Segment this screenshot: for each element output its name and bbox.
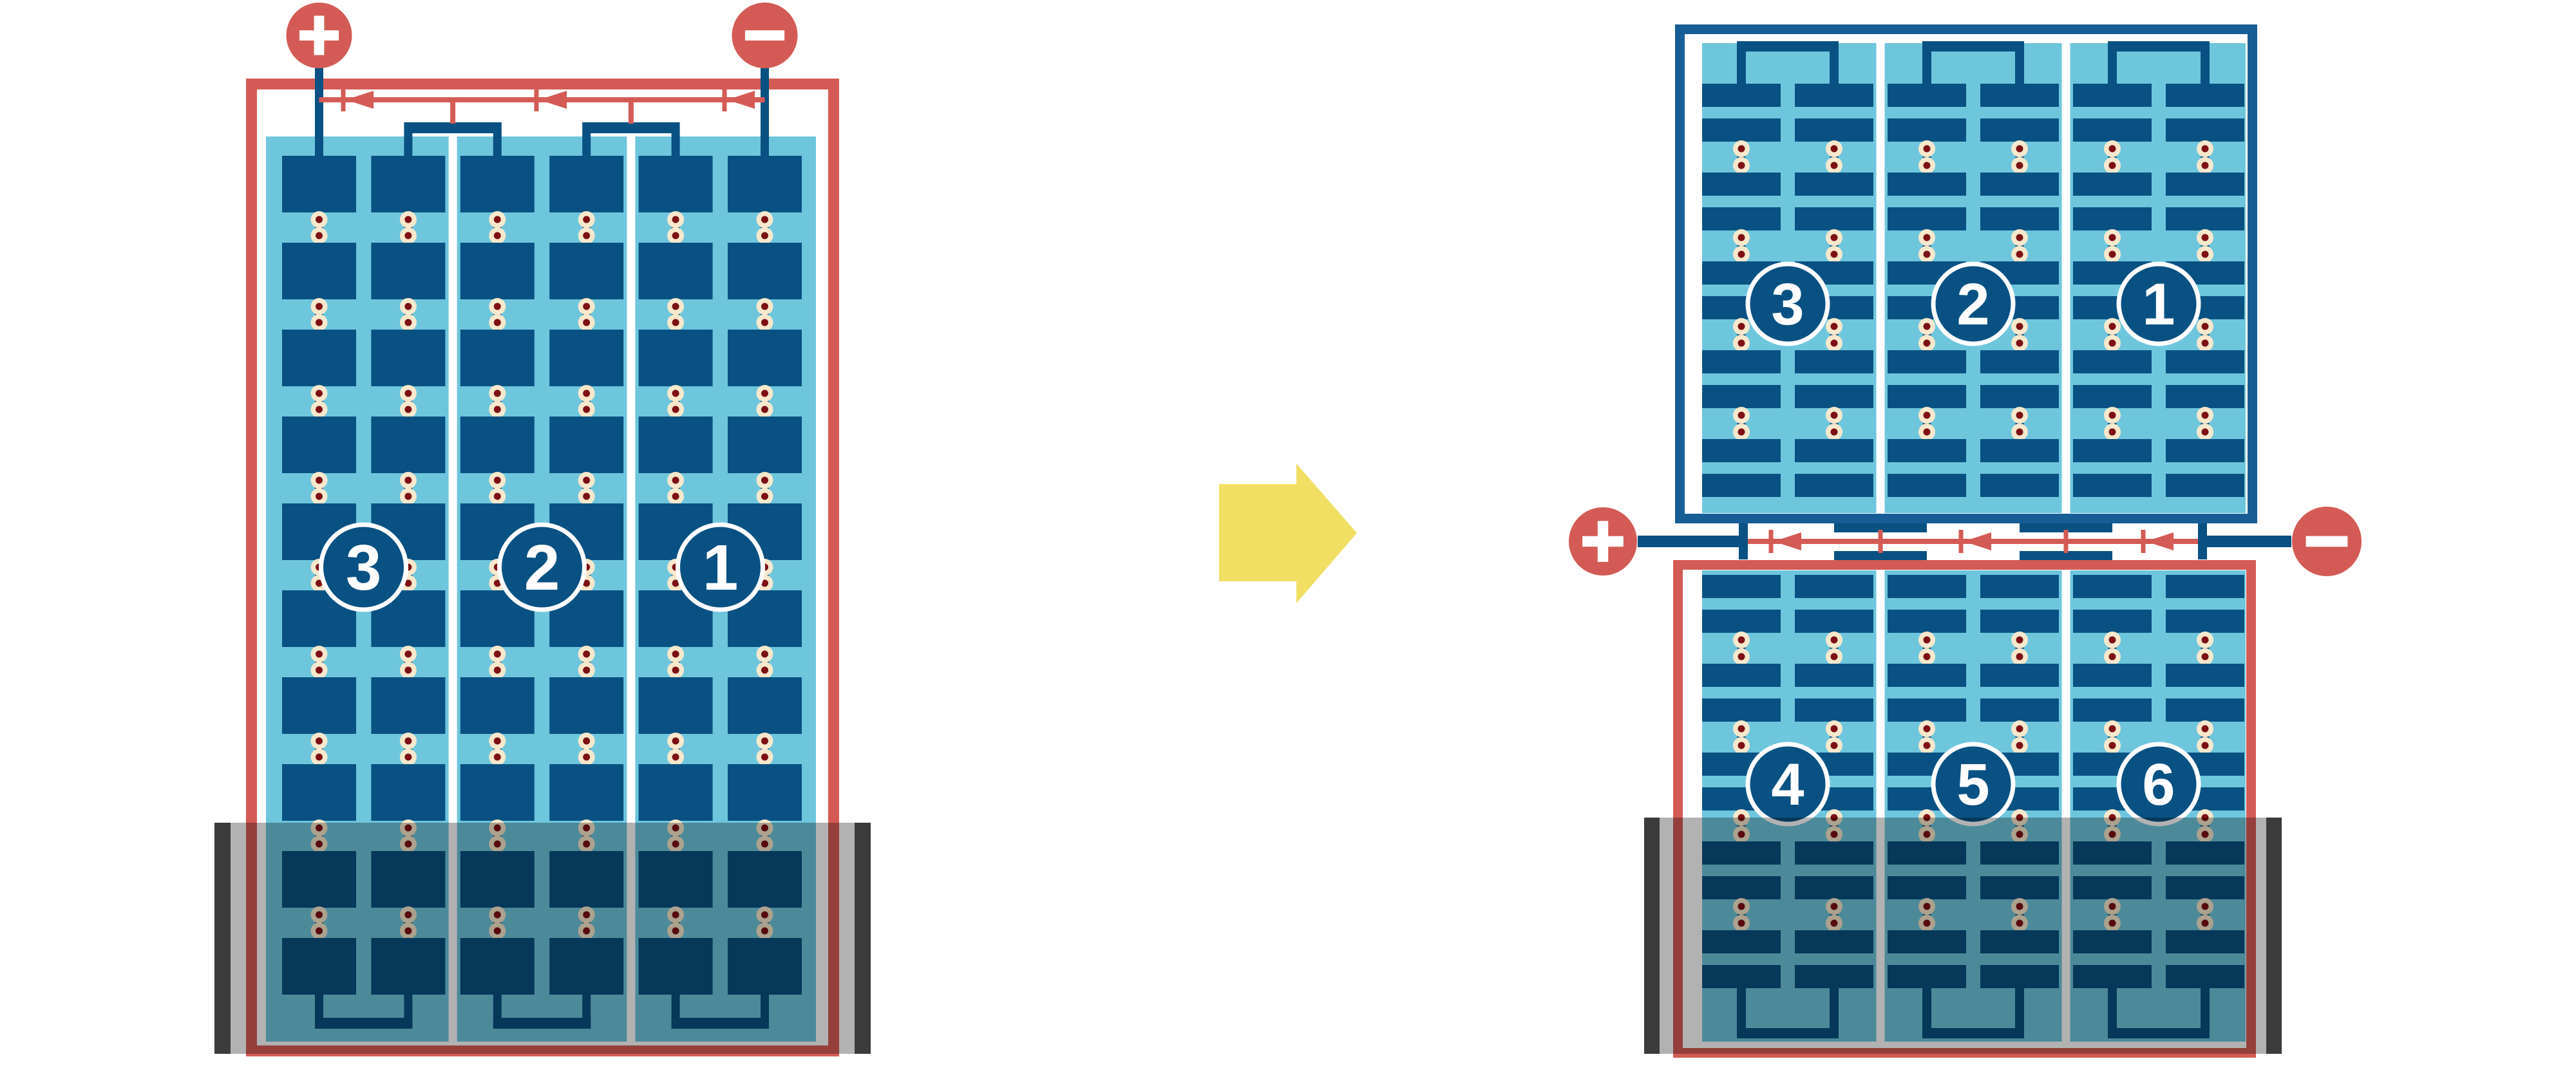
solder-dot-core — [1831, 234, 1838, 241]
solder-dot-core — [583, 738, 590, 745]
solar-cell — [282, 417, 356, 473]
solar-cell — [1795, 610, 1873, 633]
solder-dot-core — [2202, 429, 2209, 436]
solder-dot-core — [2109, 162, 2116, 169]
solar-cell — [2166, 575, 2244, 598]
solar-cell — [1702, 385, 1781, 408]
solder-dot-core — [2202, 251, 2209, 258]
string-label-circle: 4 — [1748, 744, 1828, 824]
solder-dot-core — [1738, 653, 1745, 660]
solder-dot-core — [1924, 429, 1931, 436]
solder-dot-core — [2202, 653, 2209, 660]
terminal-stem — [2207, 536, 2291, 547]
right-module-top-half: 321 — [1680, 30, 2253, 519]
jumper-stem — [672, 133, 680, 156]
solder-dot-core — [494, 754, 501, 761]
plus-terminal-icon — [287, 3, 352, 68]
solder-dot-core — [583, 651, 590, 658]
solder-dot-core — [1924, 145, 1931, 153]
solder-dot-core — [316, 319, 323, 326]
solder-dot-core — [761, 216, 768, 223]
shade-edge-bar — [214, 823, 231, 1054]
solar-cell — [2166, 698, 2244, 722]
solder-dot-core — [1831, 653, 1838, 660]
solder-dot-core — [2202, 742, 2209, 749]
solder-dot-core — [761, 754, 768, 761]
solder-dot-core — [672, 738, 679, 745]
solder-dot-core — [1924, 323, 1931, 330]
solder-dot-core — [583, 754, 590, 761]
solar-cell — [1980, 173, 2059, 196]
solder-dot-core — [1924, 251, 1931, 258]
shade-edge-bar — [2266, 818, 2282, 1054]
solar-cell — [460, 243, 535, 299]
u-connector-stem — [2108, 50, 2117, 84]
solder-dot-core — [583, 303, 590, 310]
solder-dot-core — [672, 406, 679, 413]
terminal-glyph — [1598, 521, 1608, 562]
solar-cell — [282, 677, 356, 734]
solar-cell — [639, 417, 713, 473]
solar-cell — [1702, 474, 1781, 497]
bypass-diode-icon — [727, 91, 755, 109]
string-label-circle: 1 — [2119, 264, 2199, 344]
solder-dot-core — [404, 651, 412, 658]
solder-dot-core — [761, 390, 768, 397]
solder-dot-core — [2202, 726, 2209, 733]
solar-cell — [371, 330, 445, 386]
solder-dot-core — [494, 477, 501, 484]
solar-cell — [549, 417, 623, 473]
solar-cell — [2073, 173, 2152, 196]
solder-dot-core — [2016, 340, 2023, 347]
solder-dot-core — [2016, 429, 2023, 436]
solder-dot-core — [1738, 429, 1745, 436]
solar-cell — [1795, 350, 1873, 373]
jumper-stem — [582, 133, 591, 156]
solar-cell — [1795, 664, 1873, 687]
solder-dot-core — [316, 303, 323, 310]
solder-dot-core — [2016, 323, 2023, 330]
shade-overlay — [1644, 818, 2282, 1054]
solar-cell — [549, 764, 623, 821]
solar-cell — [2073, 698, 2152, 722]
solar-cell — [1888, 575, 1966, 598]
solder-dot-core — [672, 303, 679, 310]
string-label-text: 1 — [703, 532, 739, 604]
string-divider — [2062, 43, 2070, 513]
solar-cell — [1795, 173, 1873, 196]
solder-dot-core — [2109, 653, 2116, 660]
solar-cell — [1795, 439, 1873, 462]
solar-cell — [728, 417, 802, 473]
solar-cell — [728, 156, 802, 212]
solder-dot-core — [2016, 742, 2023, 749]
terminal-glyph — [2306, 536, 2348, 547]
string-label-text: 2 — [1956, 272, 1989, 337]
solar-cell — [2166, 207, 2244, 230]
solar-cell — [1702, 698, 1781, 722]
solder-dot-core — [1738, 742, 1745, 749]
solder-dot-core — [494, 232, 501, 239]
solder-dot-core — [1738, 412, 1745, 419]
solder-dot-core — [1924, 234, 1931, 241]
solder-dot-core — [1738, 637, 1745, 644]
bus-stub — [629, 100, 634, 124]
solder-dot-core — [2202, 323, 2209, 330]
solder-dot-core — [2202, 234, 2209, 241]
solar-cell — [2073, 664, 2152, 687]
bus-stub — [2064, 530, 2069, 553]
solder-dot-core — [404, 319, 412, 326]
solar-cell — [1980, 350, 2059, 373]
solar-cell — [2073, 575, 2152, 598]
solder-dot-core — [1924, 412, 1931, 419]
left-bypass-bus — [319, 88, 765, 124]
solder-dot-core — [316, 232, 323, 239]
solder-dot-core — [404, 738, 412, 745]
u-connector-bar — [2108, 41, 2210, 52]
solder-dot-core — [2016, 251, 2023, 258]
solar-cell — [639, 330, 713, 386]
solar-cell — [1888, 118, 1966, 142]
solar-cell — [1702, 610, 1781, 633]
solar-cell — [1980, 84, 2059, 107]
solar-cell — [2073, 439, 2152, 462]
solder-dot-core — [404, 477, 412, 484]
solar-cell — [639, 677, 713, 734]
solar-cell — [282, 330, 356, 386]
minus-terminal-icon — [732, 3, 798, 68]
solar-cell — [639, 156, 713, 212]
solder-dot-core — [2016, 234, 2023, 241]
solder-dot-core — [1924, 653, 1931, 660]
solder-dot-core — [2109, 412, 2116, 419]
solar-cell — [460, 764, 535, 821]
solder-dot-core — [316, 390, 323, 397]
terminal-stem — [1638, 536, 1741, 547]
diode-cathode-bar — [723, 88, 727, 111]
right-arrow-icon — [1219, 464, 1357, 603]
string-label-text: 3 — [346, 532, 382, 604]
solar-cell — [2166, 439, 2244, 462]
solder-dot-core — [1831, 251, 1838, 258]
solar-cell — [1888, 385, 1966, 408]
solar-cell — [460, 330, 535, 386]
solder-dot-core — [761, 232, 768, 239]
solar-cell — [1795, 474, 1873, 497]
solar-cell — [549, 677, 623, 734]
string-label-text: 5 — [1956, 752, 1989, 818]
left-shade — [214, 823, 871, 1054]
solar-cell — [728, 764, 802, 821]
jumper-stem — [493, 133, 502, 156]
solar-cell — [1888, 207, 1966, 230]
solder-dot-core — [494, 303, 501, 310]
diode-cathode-bar — [341, 88, 346, 111]
solder-dot-core — [761, 319, 768, 326]
solder-dot-core — [583, 216, 590, 223]
string-label-circle: 1 — [678, 525, 763, 610]
solder-dot-core — [1738, 726, 1745, 733]
solder-dot-core — [1831, 323, 1838, 330]
solder-dot-core — [404, 667, 412, 674]
solder-dot-core — [1738, 162, 1745, 169]
diode-cathode-bar — [1769, 530, 1774, 553]
minus-terminal-icon — [2292, 507, 2362, 576]
solder-dot-core — [583, 390, 590, 397]
solder-dot-core — [672, 667, 679, 674]
solar-cell — [460, 677, 535, 734]
solar-cell — [1980, 575, 2059, 598]
solar-cell — [728, 677, 802, 734]
solar-cell — [728, 243, 802, 299]
solar-cell — [1888, 474, 1966, 497]
solder-dot-core — [494, 406, 501, 413]
solar-cell — [1795, 84, 1873, 107]
solder-dot-core — [316, 738, 323, 745]
u-connector-bar — [1737, 41, 1839, 52]
solder-dot-core — [494, 651, 501, 658]
solder-dot-core — [2016, 653, 2023, 660]
solar-cell — [2166, 474, 2244, 497]
solar-cell — [1980, 118, 2059, 142]
solder-dot-core — [2109, 726, 2116, 733]
string-label-circle: 5 — [1933, 744, 2013, 824]
bus-stub — [450, 100, 455, 124]
diagram-canvas: 321321456 — [0, 0, 2576, 1068]
bypass-diode-icon — [346, 91, 374, 109]
solder-dot-core — [1831, 726, 1838, 733]
solder-dot-core — [2202, 637, 2209, 644]
solder-dot-core — [2109, 145, 2116, 153]
solder-dot-core — [672, 319, 679, 326]
solder-dot-core — [2016, 145, 2023, 153]
solar-cell — [2073, 474, 2152, 497]
solar-cell — [2073, 385, 2152, 408]
solder-dot-core — [316, 216, 323, 223]
solder-dot-core — [316, 406, 323, 413]
solder-dot-core — [404, 493, 412, 500]
solder-dot-core — [761, 493, 768, 500]
solder-dot-core — [1831, 145, 1838, 153]
solder-dot-core — [672, 390, 679, 397]
solder-dot-core — [672, 651, 679, 658]
solar-cell — [371, 764, 445, 821]
solder-dot-core — [2016, 412, 2023, 419]
right-shade — [1644, 818, 2282, 1054]
u-connector-stem — [1922, 50, 1931, 84]
u-connector-bar — [1922, 41, 2024, 52]
solder-dot-core — [494, 493, 501, 500]
solder-dot-core — [583, 406, 590, 413]
solar-cell — [639, 764, 713, 821]
solar-cell — [1888, 664, 1966, 687]
solar-cell — [2166, 385, 2244, 408]
string-label-circle: 2 — [500, 525, 585, 610]
solar-cell — [549, 156, 623, 212]
solder-dot-core — [2109, 340, 2116, 347]
shade-edge-bar — [1644, 818, 1660, 1054]
solder-dot-core — [2016, 162, 2023, 169]
solder-dot-core — [2016, 726, 2023, 733]
solar-cell — [1888, 173, 1966, 196]
string-label-text: 1 — [2142, 272, 2175, 337]
solder-dot-core — [2202, 412, 2209, 419]
solar-cell — [1888, 698, 1966, 722]
solder-dot-core — [672, 754, 679, 761]
solder-dot-core — [583, 493, 590, 500]
bypass-diode-icon — [539, 91, 567, 109]
solder-dot-core — [404, 390, 412, 397]
solder-dot-core — [583, 477, 590, 484]
bypass-diode-icon — [1964, 532, 1991, 550]
solar-cell — [1702, 350, 1781, 373]
solder-dot-core — [583, 232, 590, 239]
solder-dot-core — [316, 651, 323, 658]
solar-cell — [2073, 207, 2152, 230]
bypass-diode-icon — [1774, 532, 1801, 550]
solder-dot-core — [1738, 340, 1745, 347]
solar-cell — [728, 330, 802, 386]
solder-dot-core — [1831, 637, 1838, 644]
solder-dot-core — [404, 232, 412, 239]
solar-cell — [2166, 84, 2244, 107]
solder-dot-core — [2109, 251, 2116, 258]
solar-cell — [2166, 173, 2244, 196]
solder-dot-core — [583, 319, 590, 326]
solder-dot-core — [2202, 340, 2209, 347]
solar-cell — [639, 243, 713, 299]
solar-cell — [371, 243, 445, 299]
solder-dot-core — [316, 667, 323, 674]
solder-dot-core — [2109, 323, 2116, 330]
solar-cell — [1795, 118, 1873, 142]
solar-cell — [1980, 610, 2059, 633]
solder-dot-core — [1738, 145, 1745, 153]
solder-dot-core — [761, 738, 768, 745]
u-connector-stem — [2201, 50, 2210, 84]
terminal-glyph — [745, 30, 784, 41]
solder-dot-core — [672, 477, 679, 484]
solar-cell — [1980, 698, 2059, 722]
solar-cell — [1702, 439, 1781, 462]
solar-cell — [1702, 575, 1781, 598]
solar-cell — [2166, 350, 2244, 373]
solder-dot-core — [494, 216, 501, 223]
bus-stub — [1879, 530, 1883, 553]
solder-dot-core — [494, 667, 501, 674]
solar-cell — [1980, 385, 2059, 408]
solar-cell — [2166, 664, 2244, 687]
string-label-circle: 3 — [1748, 264, 1828, 344]
shade-overlay — [214, 823, 871, 1054]
solder-dot-core — [494, 319, 501, 326]
solar-cell — [1795, 575, 1873, 598]
solder-dot-core — [761, 406, 768, 413]
solder-dot-core — [2016, 637, 2023, 644]
solder-dot-core — [1924, 637, 1931, 644]
u-connector-stem — [2015, 50, 2024, 84]
solder-dot-core — [2109, 234, 2116, 241]
solar-cell — [460, 417, 535, 473]
solder-dot-core — [404, 216, 412, 223]
solder-dot-core — [761, 667, 768, 674]
solar-cell — [1702, 207, 1781, 230]
solder-dot-core — [404, 406, 412, 413]
transform-arrow — [1219, 464, 1357, 603]
solar-cell — [371, 677, 445, 734]
solar-cell — [1980, 207, 2059, 230]
solar-cell — [460, 156, 535, 212]
solder-dot-core — [1831, 742, 1838, 749]
solar-cell — [2166, 118, 2244, 142]
solder-dot-core — [2109, 429, 2116, 436]
solder-dot-core — [672, 493, 679, 500]
solar-cell — [549, 243, 623, 299]
bypass-diode-icon — [2146, 532, 2173, 550]
diode-cathode-bar — [2141, 530, 2146, 553]
solar-cell — [1795, 207, 1873, 230]
solder-dot-core — [494, 390, 501, 397]
solar-cell — [1888, 350, 1966, 373]
solar-cell — [371, 417, 445, 473]
solar-cell — [1980, 439, 2059, 462]
solder-dot-core — [1831, 412, 1838, 419]
solar-cell — [1980, 474, 2059, 497]
jumper-bar — [404, 122, 501, 133]
solder-dot-core — [1831, 162, 1838, 169]
solar-cell — [1888, 84, 1966, 107]
solar-cell — [371, 156, 445, 212]
solder-dot-core — [2109, 637, 2116, 644]
solar-cell — [1702, 84, 1781, 107]
solar-cell — [282, 156, 356, 212]
solar-cell — [1888, 610, 1966, 633]
jumper-stem — [404, 133, 412, 156]
solder-dot-core — [316, 754, 323, 761]
shade-edge-bar — [855, 823, 871, 1054]
string-label-circle: 2 — [1933, 264, 2013, 344]
u-connector-stem — [1830, 50, 1839, 84]
plus-terminal-icon — [1569, 507, 1637, 576]
diode-cathode-bar — [535, 88, 539, 111]
solar-cell — [1702, 664, 1781, 687]
solar-cell — [1795, 385, 1873, 408]
solder-dot-core — [583, 667, 590, 674]
solder-dot-core — [494, 738, 501, 745]
solar-cell — [1702, 118, 1781, 142]
string-label-text: 2 — [524, 532, 560, 604]
solder-dot-core — [1924, 742, 1931, 749]
string-label-text: 3 — [1771, 272, 1804, 337]
terminal-glyph — [314, 15, 325, 55]
solar-cell — [2073, 350, 2152, 373]
solder-dot-core — [2202, 145, 2209, 153]
string-label-circle: 3 — [321, 525, 406, 610]
solder-dot-core — [2202, 162, 2209, 169]
solar-cell — [2166, 610, 2244, 633]
u-connector-stem — [1737, 50, 1746, 84]
solder-dot-core — [316, 477, 323, 484]
diode-cathode-bar — [1959, 530, 1964, 553]
solder-dot-core — [1831, 429, 1838, 436]
solar-cell — [1702, 173, 1781, 196]
solar-cell — [2073, 118, 2152, 142]
solder-dot-core — [672, 232, 679, 239]
solder-dot-core — [1738, 251, 1745, 258]
solder-dot-core — [1831, 340, 1838, 347]
